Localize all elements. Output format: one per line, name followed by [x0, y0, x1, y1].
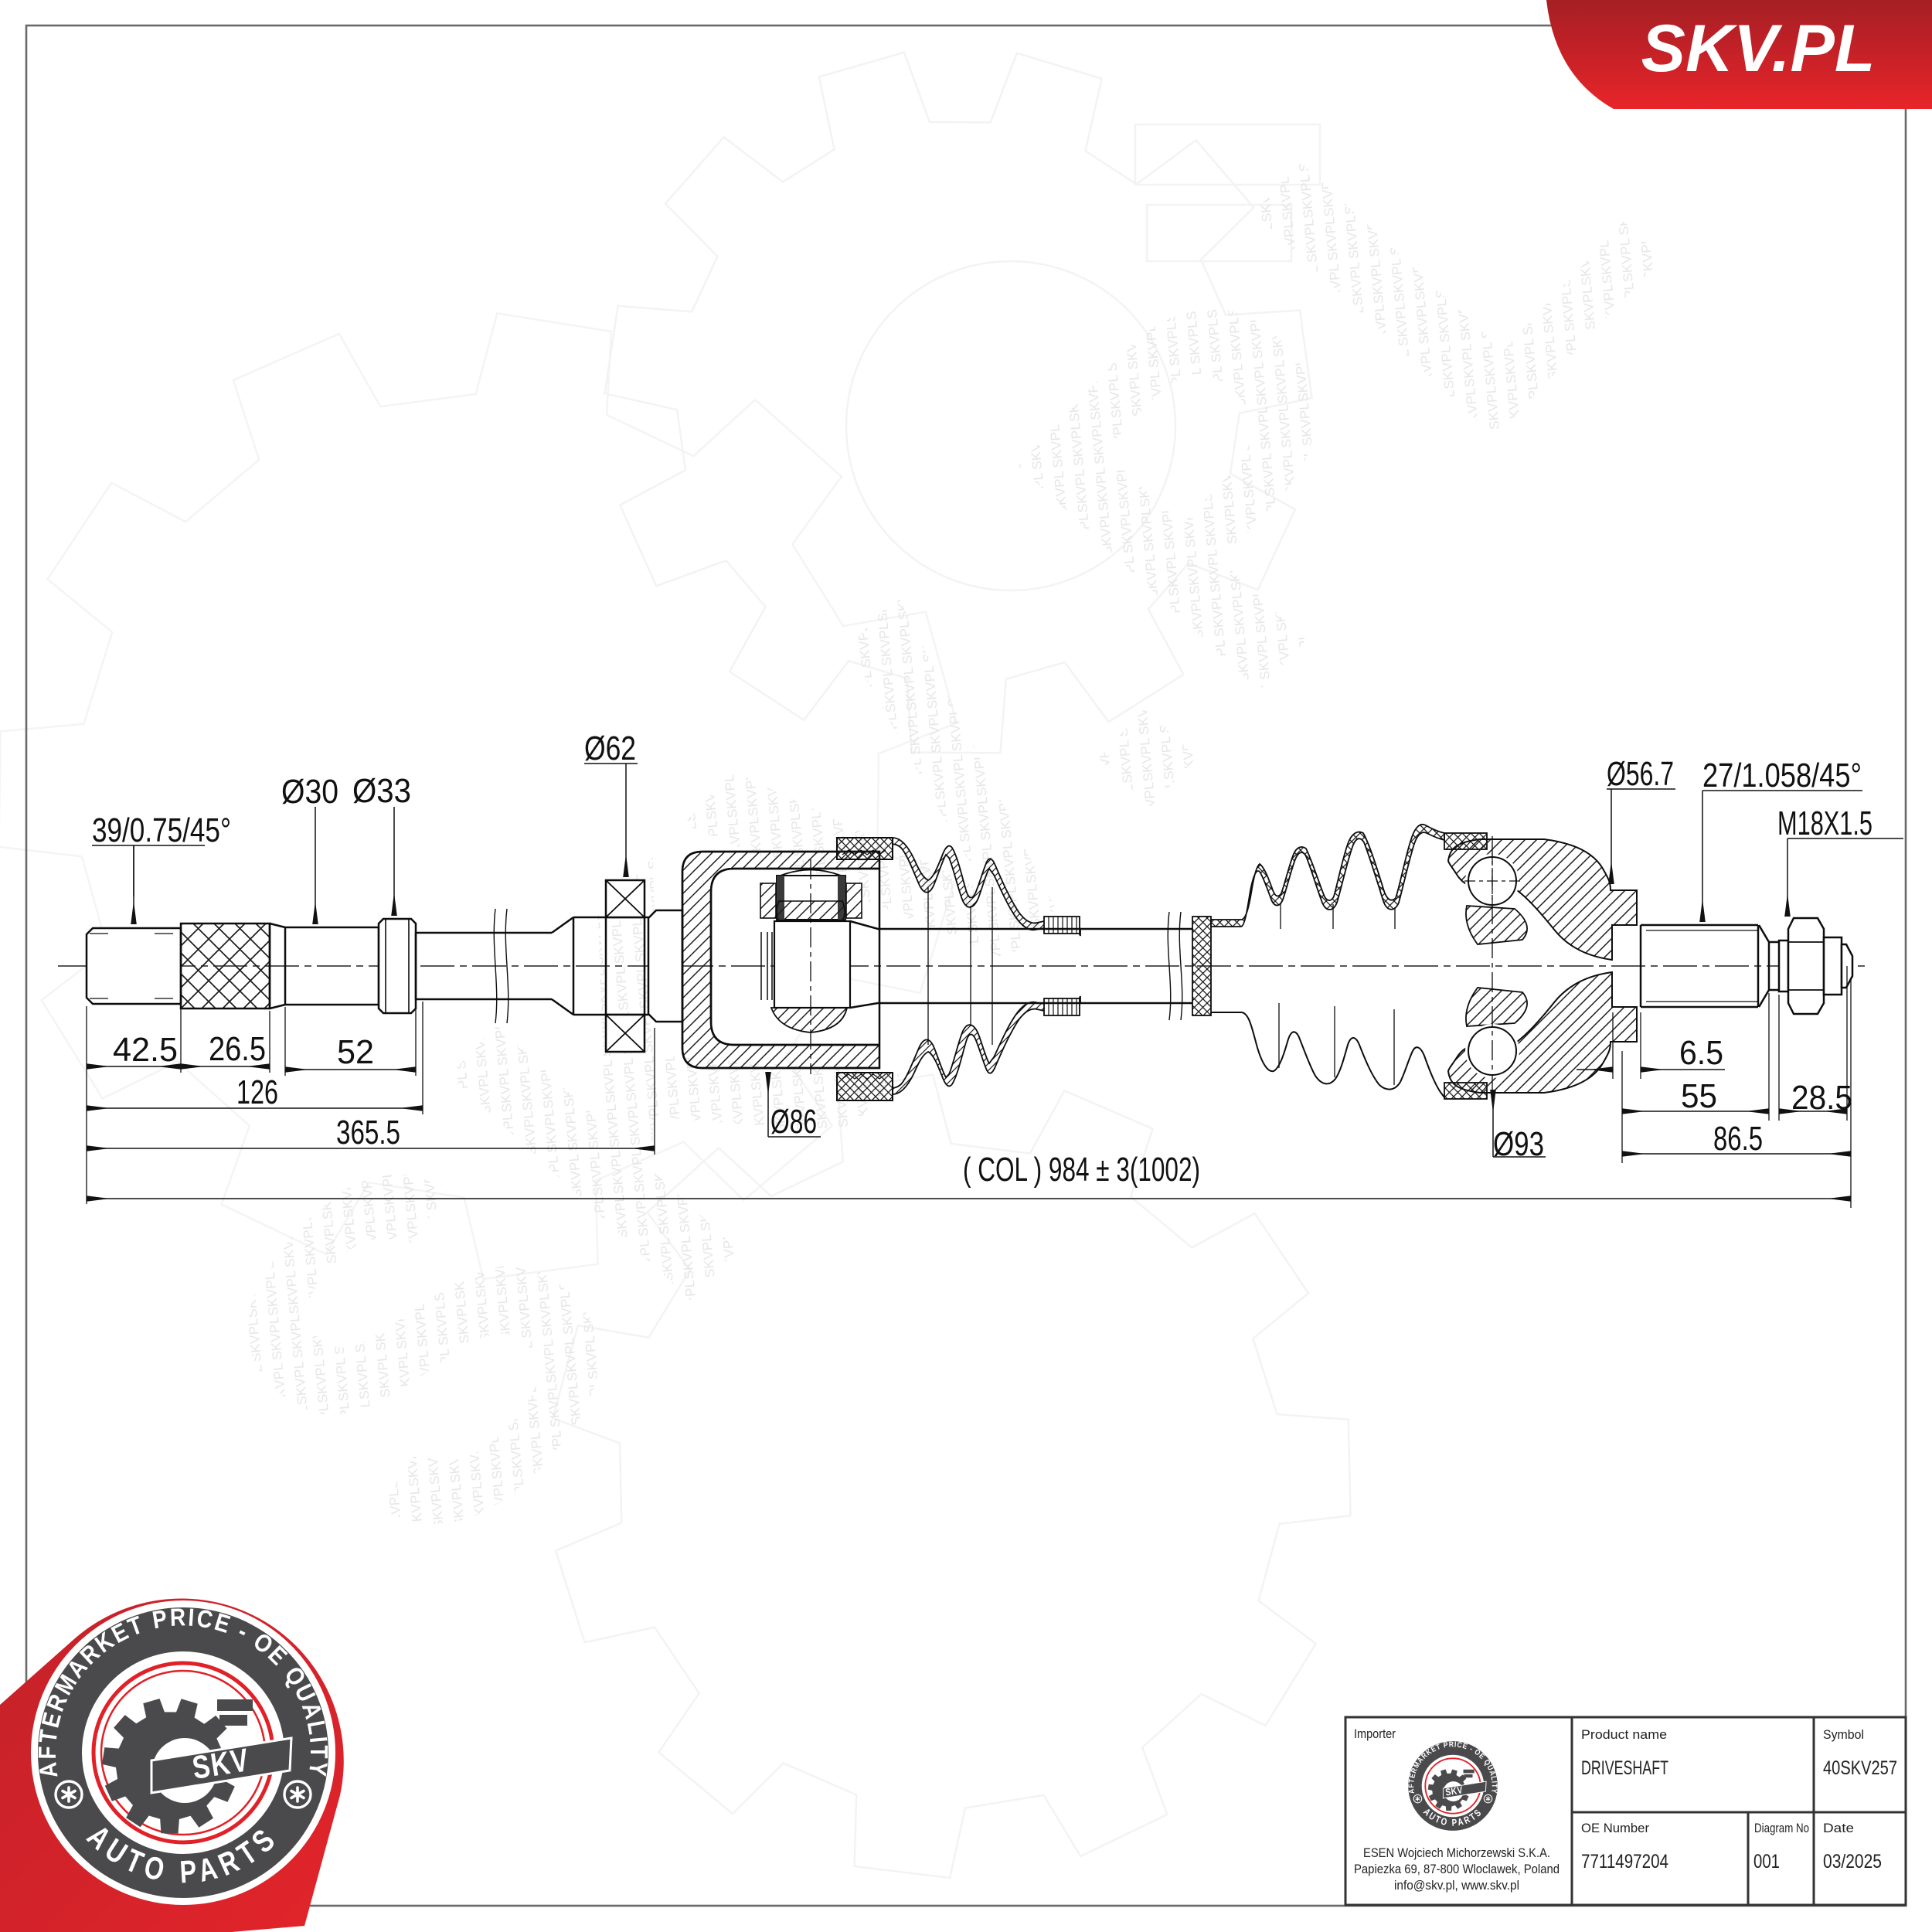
svg-text:86.5: 86.5: [1713, 1120, 1763, 1158]
svg-text:03/2025: 03/2025: [1823, 1851, 1882, 1872]
svg-text:SKV.PL: SKV.PL: [1641, 12, 1876, 86]
svg-text:40SKV257: 40SKV257: [1823, 1757, 1897, 1779]
svg-text:Ø33: Ø33: [352, 772, 411, 810]
svg-text:28.5: 28.5: [1791, 1079, 1852, 1117]
svg-text:DRIVESHAFT: DRIVESHAFT: [1581, 1757, 1668, 1779]
svg-text:Diagram No: Diagram No: [1754, 1821, 1809, 1835]
svg-text:39/0.75/45°: 39/0.75/45°: [92, 811, 231, 849]
svg-text:Ø62: Ø62: [584, 730, 636, 767]
svg-text:365.5: 365.5: [336, 1114, 400, 1151]
svg-text:27/1.058/45°: 27/1.058/45°: [1702, 757, 1862, 794]
svg-text:Ø56.7: Ø56.7: [1607, 755, 1674, 793]
svg-text:Product name: Product name: [1581, 1727, 1667, 1742]
svg-text:OE Number: OE Number: [1581, 1821, 1649, 1835]
svg-text:26.5: 26.5: [209, 1030, 266, 1068]
svg-text:7711497204: 7711497204: [1581, 1851, 1668, 1872]
svg-text:Ø86: Ø86: [770, 1103, 817, 1141]
svg-text:52: 52: [337, 1033, 374, 1071]
svg-text:6.5: 6.5: [1679, 1034, 1723, 1072]
svg-text:42.5: 42.5: [113, 1031, 178, 1069]
svg-text:M18X1.5: M18X1.5: [1777, 804, 1872, 842]
svg-text:( COL ) 984 ± 3(1002): ( COL ) 984 ± 3(1002): [963, 1151, 1200, 1189]
svg-text:Papiezka 69, 87-800 Wloclawek,: Papiezka 69, 87-800 Wloclawek, Poland: [1354, 1862, 1560, 1876]
svg-text:Date: Date: [1823, 1821, 1854, 1835]
svg-text:Ø93: Ø93: [1493, 1125, 1544, 1163]
svg-text:126: 126: [236, 1073, 278, 1111]
svg-text:Symbol: Symbol: [1823, 1727, 1864, 1742]
svg-text:info@skv.pl, www.skv.pl: info@skv.pl, www.skv.pl: [1394, 1878, 1519, 1893]
svg-text:Ø30: Ø30: [281, 773, 338, 811]
svg-text:55: 55: [1681, 1077, 1717, 1115]
svg-text:Importer: Importer: [1354, 1726, 1396, 1741]
svg-text:ESEN Wojciech Michorzewski S.K: ESEN Wojciech Michorzewski S.K.A.: [1363, 1845, 1550, 1860]
svg-text:001: 001: [1753, 1851, 1780, 1872]
